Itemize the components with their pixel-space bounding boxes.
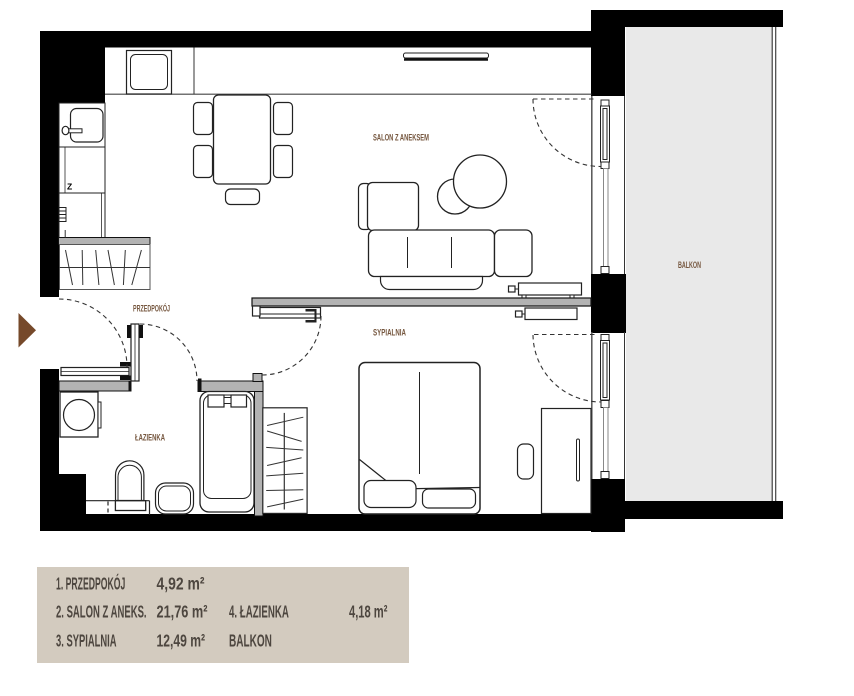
svg-text:4. ŁAZIENKA: 4. ŁAZIENKA <box>229 601 289 621</box>
svg-text:3. SYPIALNIA: 3. SYPIALNIA <box>56 630 117 650</box>
svg-text:Z: Z <box>67 182 72 192</box>
svg-text:4,18 m²: 4,18 m² <box>349 603 388 622</box>
svg-text:2. SALON Z ANEKS.: 2. SALON Z ANEKS. <box>56 601 147 621</box>
svg-text:SYPIALNIA: SYPIALNIA <box>373 328 406 339</box>
svg-text:ŁAZIENKA: ŁAZIENKA <box>135 433 165 444</box>
svg-text:4,92 m²: 4,92 m² <box>157 575 205 594</box>
svg-text:BALKON: BALKON <box>229 632 272 652</box>
svg-text:PRZEDPOKÓJ: PRZEDPOKÓJ <box>133 303 170 315</box>
svg-text:1. PRZEDPOKÓJ: 1. PRZEDPOKÓJ <box>56 572 125 594</box>
svg-text:BALKON: BALKON <box>678 260 701 271</box>
svg-text:21,76 m²: 21,76 m² <box>157 603 208 622</box>
svg-text:12,49 m²: 12,49 m² <box>157 631 206 651</box>
svg-text:SALON Z ANEKSEM: SALON Z ANEKSEM <box>373 133 429 144</box>
